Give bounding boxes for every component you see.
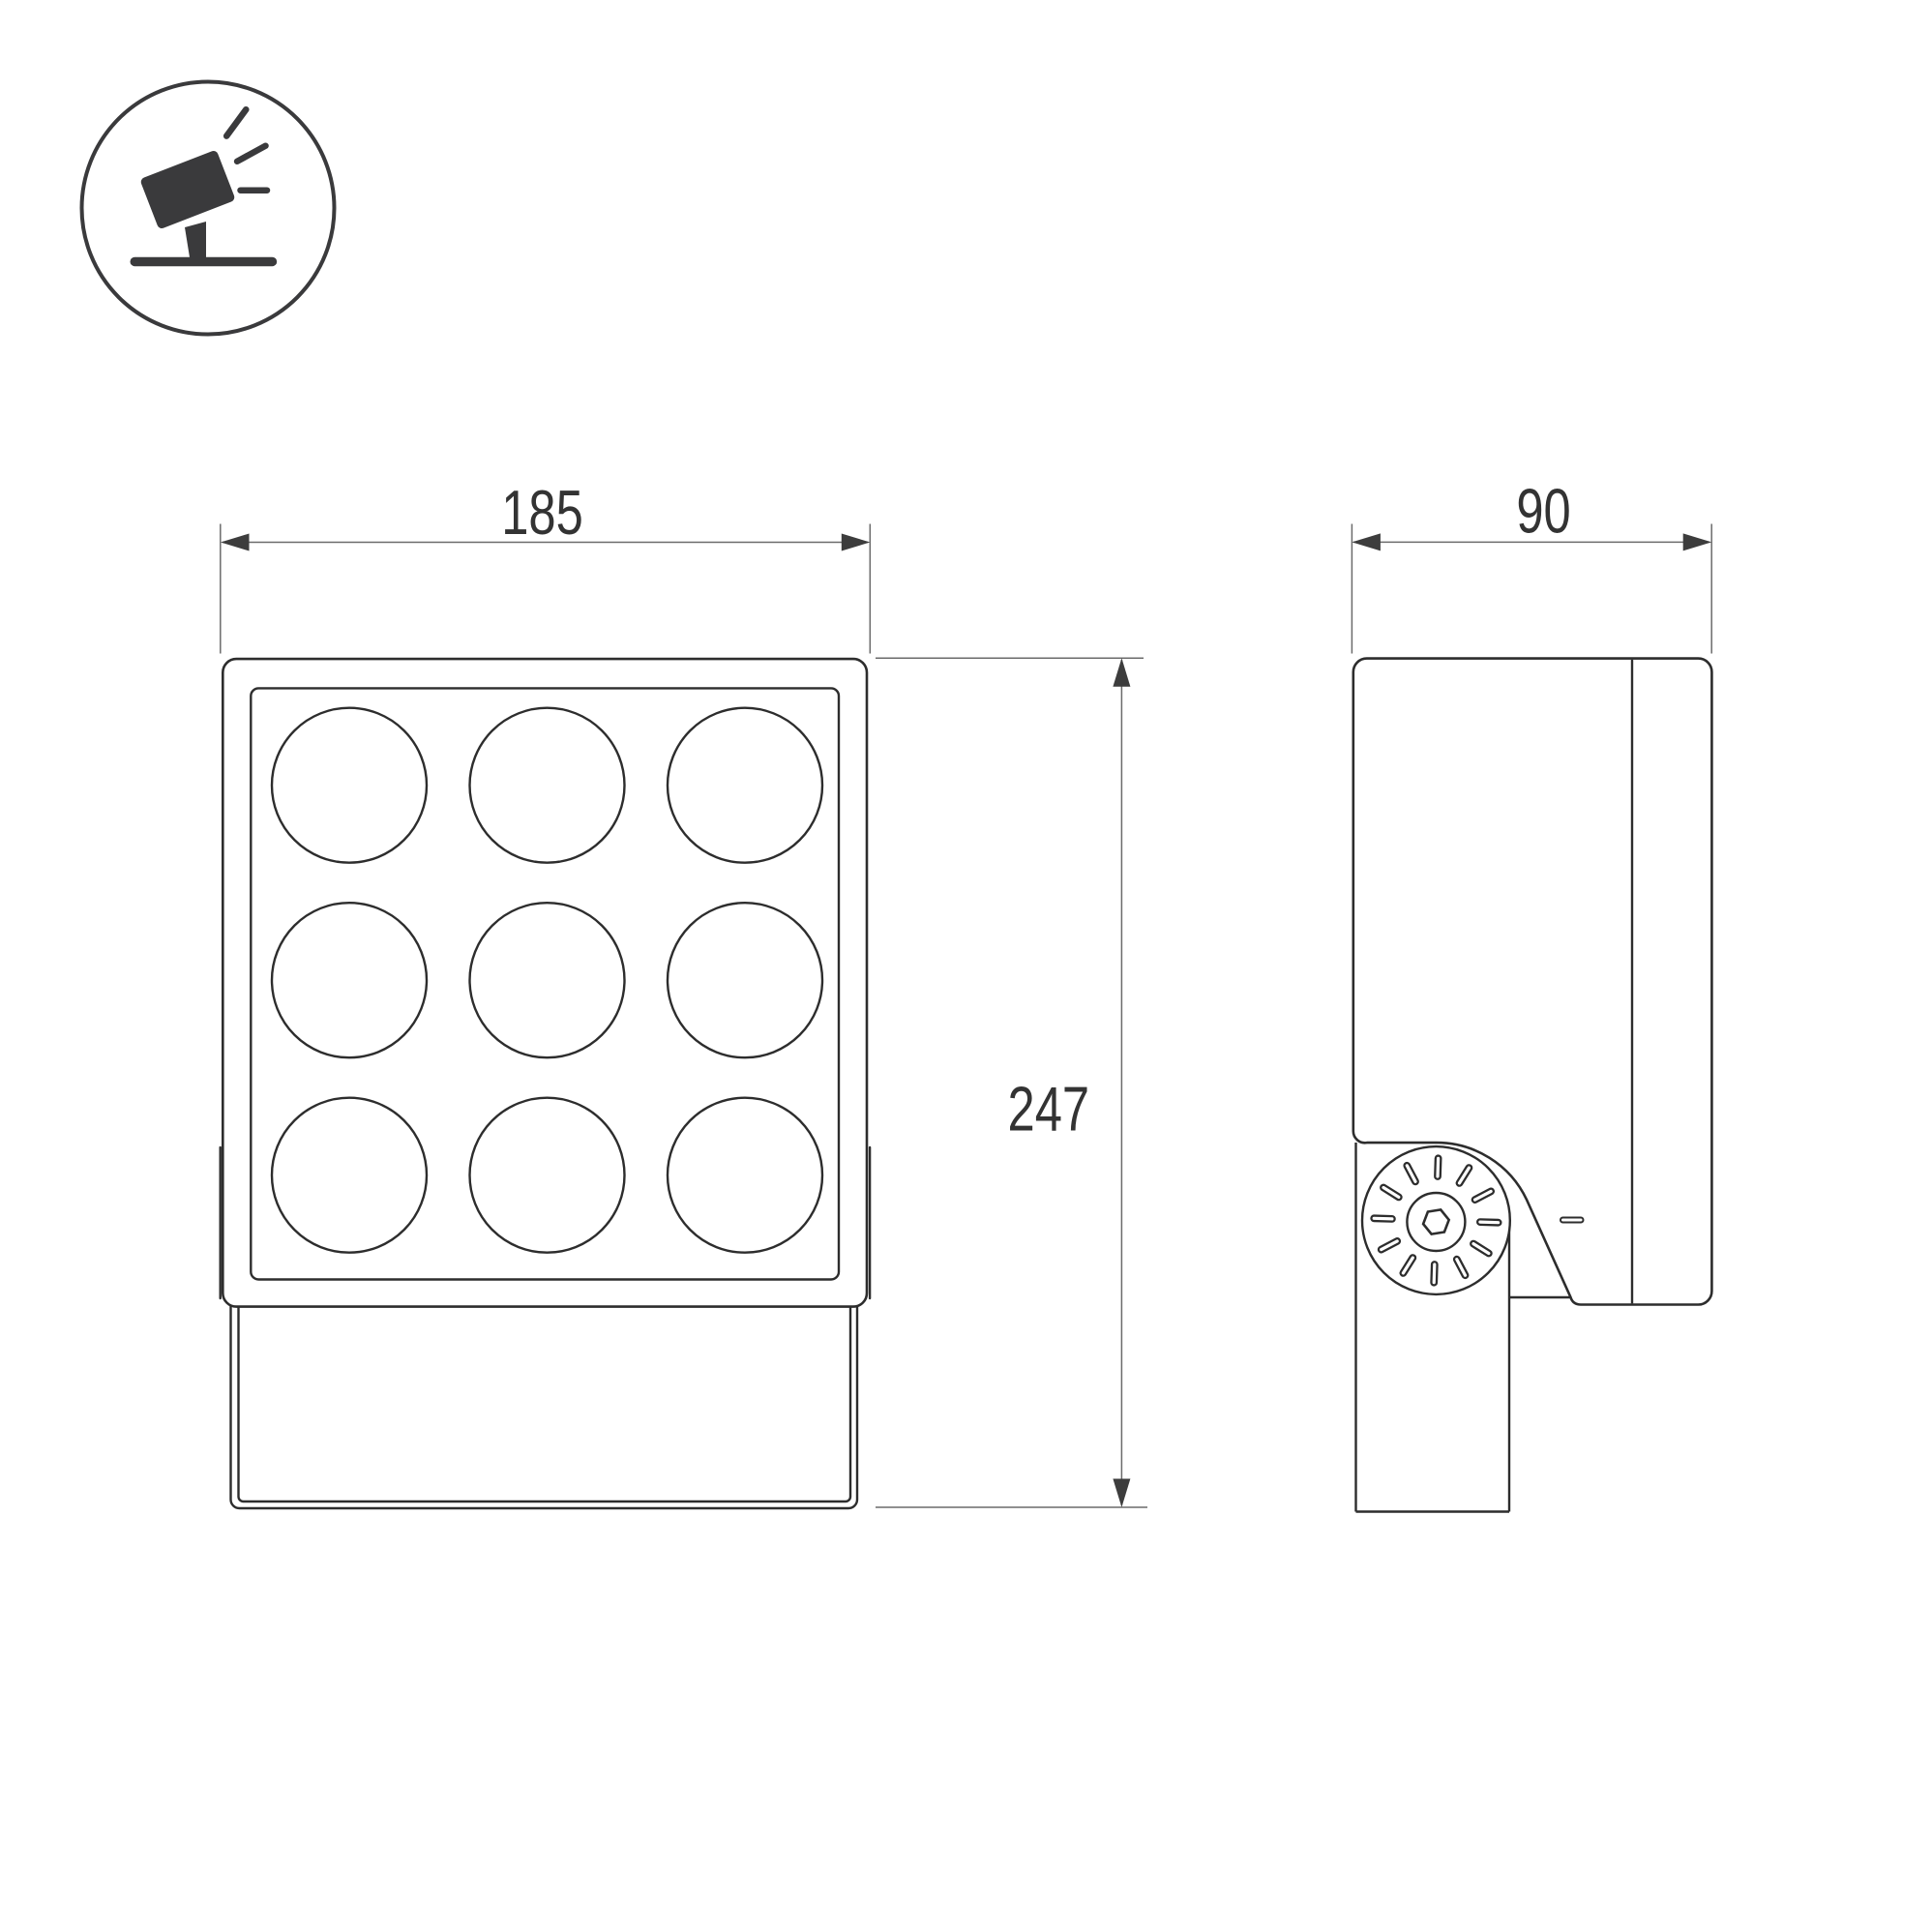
svg-text:90: 90 <box>1516 477 1570 547</box>
svg-text:185: 185 <box>501 478 583 548</box>
svg-text:247: 247 <box>1008 1075 1090 1144</box>
